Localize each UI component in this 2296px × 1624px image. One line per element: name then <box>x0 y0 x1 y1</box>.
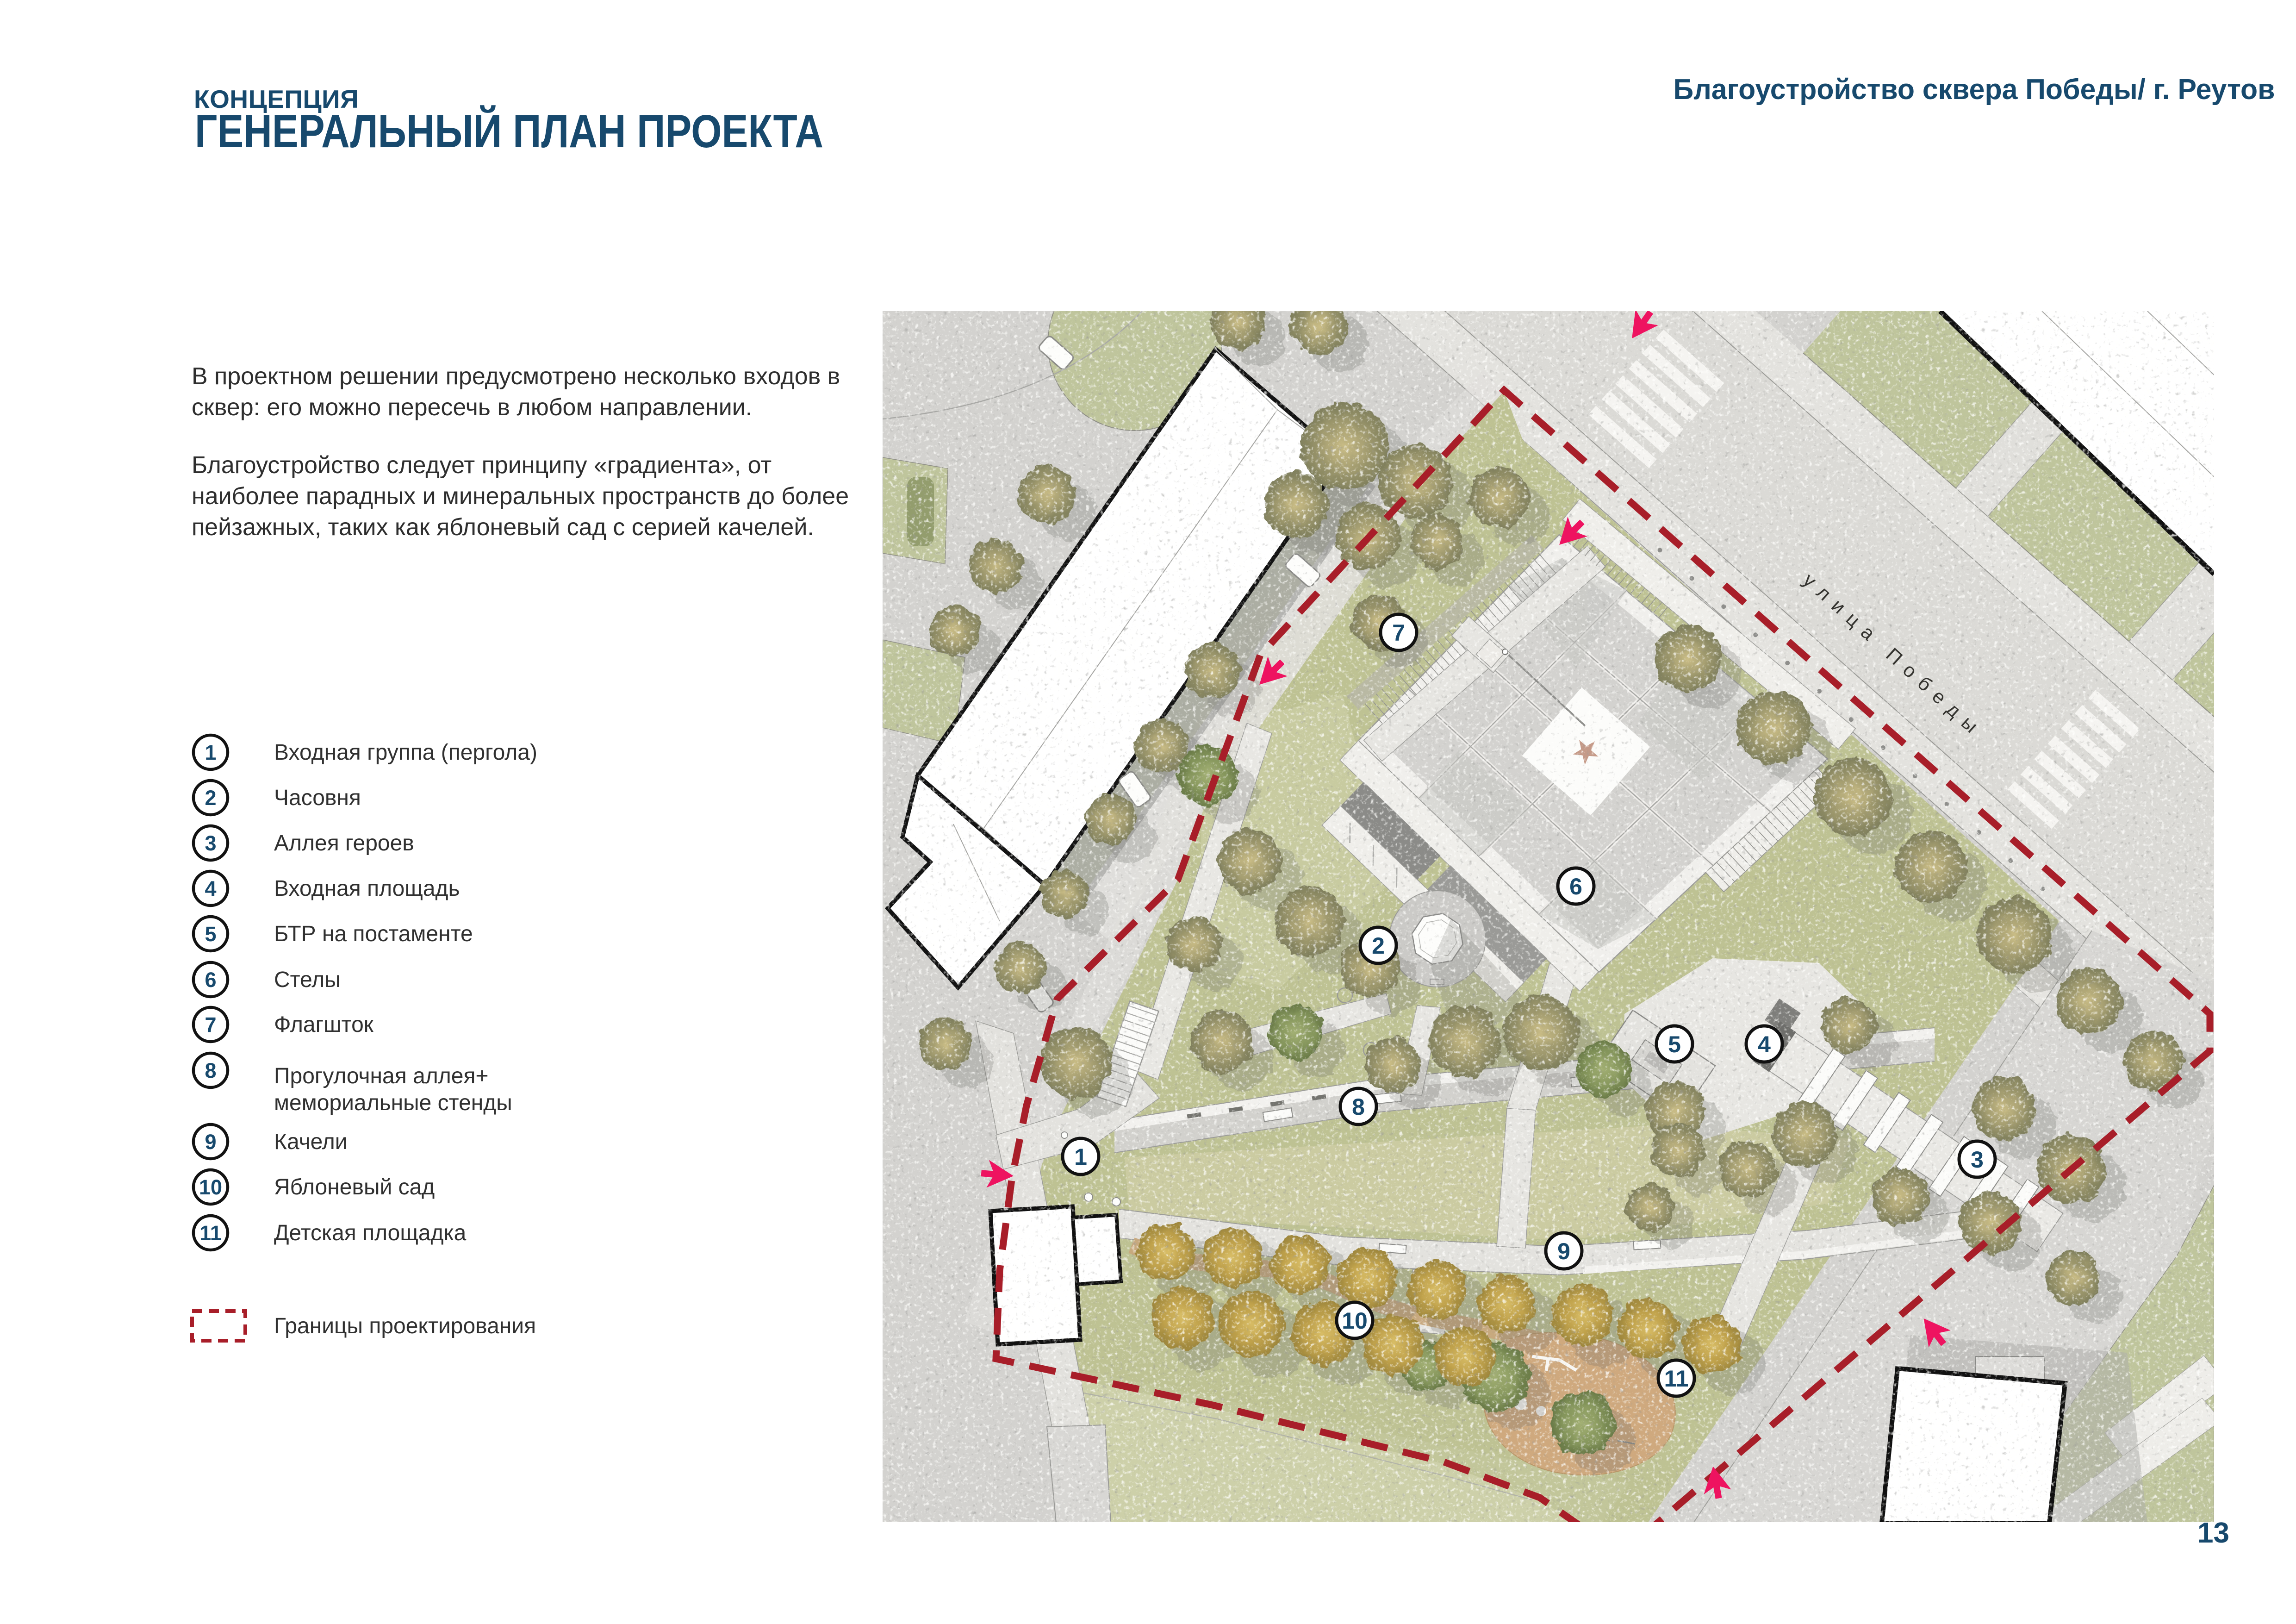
svg-text:6: 6 <box>205 968 216 992</box>
svg-text:4: 4 <box>205 877 216 900</box>
svg-text:мемориальные стенды: мемориальные стенды <box>274 1091 512 1115</box>
svg-text:2: 2 <box>1372 933 1385 959</box>
svg-text:Флагшток: Флагшток <box>274 1012 374 1037</box>
svg-text:Прогулочная аллея+: Прогулочная аллея+ <box>274 1064 489 1088</box>
svg-text:2: 2 <box>205 786 216 810</box>
svg-text:4: 4 <box>1758 1031 1771 1057</box>
svg-text:Входная площадь: Входная площадь <box>274 876 460 901</box>
svg-text:БТР на постаменте: БТР на постаменте <box>274 922 473 946</box>
svg-text:6: 6 <box>1569 874 1582 899</box>
svg-text:Часовня: Часовня <box>274 786 361 810</box>
svg-text:9: 9 <box>205 1130 216 1154</box>
svg-text:Стелы: Стелы <box>274 968 341 992</box>
svg-text:5: 5 <box>205 922 216 946</box>
svg-text:8: 8 <box>1352 1094 1365 1120</box>
svg-text:Яблоневый сад: Яблоневый сад <box>274 1175 435 1199</box>
svg-text:1: 1 <box>1074 1144 1087 1170</box>
svg-text:11: 11 <box>1664 1366 1689 1392</box>
svg-text:11: 11 <box>199 1221 222 1245</box>
svg-text:7: 7 <box>1392 620 1405 646</box>
svg-text:10: 10 <box>199 1175 222 1199</box>
svg-text:Аллея героев: Аллея героев <box>274 831 414 856</box>
svg-text:3: 3 <box>1971 1147 1984 1173</box>
svg-text:Входная группа (пергола): Входная группа (пергола) <box>274 740 537 765</box>
svg-text:1: 1 <box>205 741 216 764</box>
svg-text:Детская площадка: Детская площадка <box>274 1221 467 1245</box>
svg-text:10: 10 <box>1342 1308 1368 1334</box>
svg-text:Границы проектирования: Границы проектирования <box>274 1314 536 1338</box>
svg-text:9: 9 <box>1557 1238 1570 1264</box>
svg-text:8: 8 <box>205 1059 216 1082</box>
svg-text:3: 3 <box>205 831 216 855</box>
svg-text:5: 5 <box>1668 1031 1681 1057</box>
svg-text:Качели: Качели <box>274 1130 348 1154</box>
svg-text:7: 7 <box>205 1013 216 1037</box>
